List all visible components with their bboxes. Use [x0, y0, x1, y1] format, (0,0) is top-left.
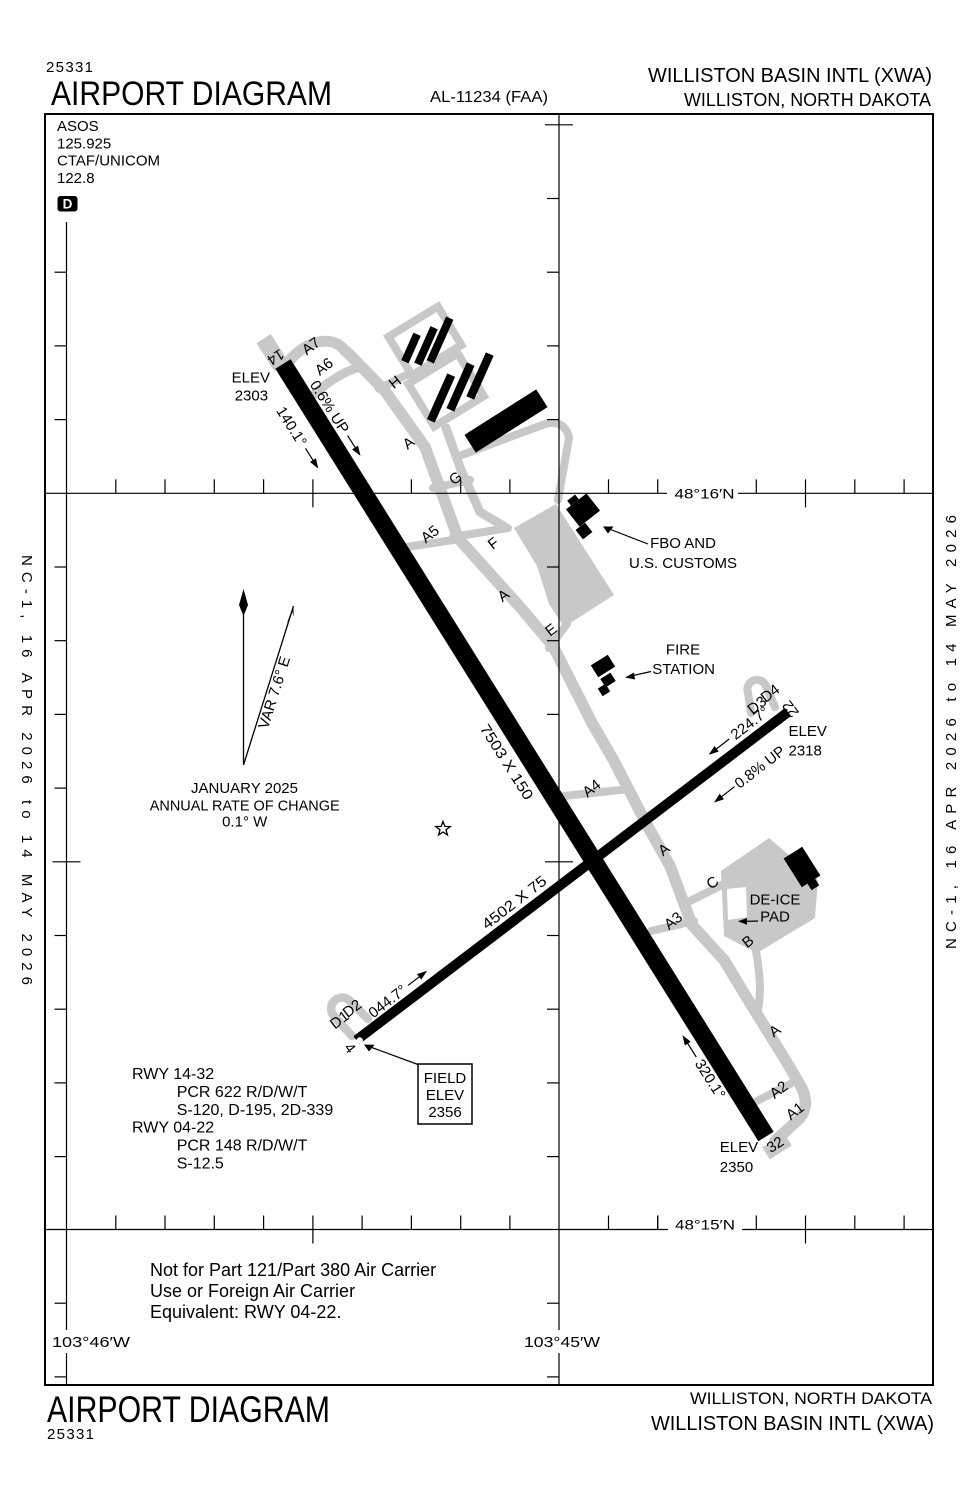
svg-text:PCR 148 R/D/W/T: PCR 148 R/D/W/T — [177, 1138, 308, 1155]
svg-text:ASOS: ASOS — [57, 118, 99, 135]
svg-text:ELEV: ELEV — [789, 723, 827, 740]
svg-text:0.1° W: 0.1° W — [222, 813, 268, 830]
svg-text:RWY 04-22: RWY 04-22 — [132, 1120, 214, 1137]
svg-text:D: D — [63, 196, 73, 211]
svg-text:WILLISTON BASIN INTL (XWA): WILLISTON BASIN INTL (XWA) — [648, 65, 932, 87]
svg-text:AL-11234 (FAA): AL-11234 (FAA) — [430, 89, 548, 106]
svg-text:WILLISTON BASIN INTL (XWA): WILLISTON BASIN INTL (XWA) — [651, 1413, 934, 1435]
svg-text:125.925: 125.925 — [57, 135, 111, 152]
svg-text:S-120, D-195, 2D-339: S-120, D-195, 2D-339 — [177, 1102, 334, 1119]
svg-text:U.S. CUSTOMS: U.S. CUSTOMS — [629, 555, 737, 572]
svg-text:2318: 2318 — [789, 743, 822, 760]
svg-text:WILLISTON, NORTH DAKOTA: WILLISTON, NORTH DAKOTA — [684, 90, 931, 110]
svg-text:Use or Foreign Air Carrier: Use or Foreign Air Carrier — [150, 1281, 355, 1301]
svg-text:2356: 2356 — [428, 1104, 461, 1121]
svg-text:48°16′N: 48°16′N — [675, 485, 735, 501]
svg-text:S-12.5: S-12.5 — [177, 1156, 224, 1173]
svg-text:ELEV: ELEV — [426, 1087, 464, 1104]
svg-text:ANNUAL RATE OF CHANGE: ANNUAL RATE OF CHANGE — [150, 798, 340, 815]
svg-text:CTAF/UNICOM: CTAF/UNICOM — [57, 153, 160, 170]
svg-text:2350: 2350 — [720, 1159, 753, 1176]
svg-text:AIRPORT DIAGRAM: AIRPORT DIAGRAM — [51, 75, 332, 113]
svg-text:FIELD: FIELD — [424, 1070, 467, 1087]
svg-text:ELEV: ELEV — [232, 370, 270, 387]
svg-text:Not for Part 121/Part 380 Air: Not for Part 121/Part 380 Air Carrier — [150, 1260, 436, 1280]
svg-text:PAD: PAD — [760, 909, 790, 926]
svg-text:103°46′W: 103°46′W — [52, 1334, 131, 1351]
svg-text:122.8: 122.8 — [57, 170, 95, 187]
svg-text:48°15′N: 48°15′N — [675, 1217, 735, 1233]
svg-text:Equivalent: RWY 04-22.: Equivalent: RWY 04-22. — [150, 1302, 341, 1322]
svg-text:DE-ICE: DE-ICE — [750, 892, 801, 909]
svg-text:25331: 25331 — [46, 59, 93, 76]
svg-text:STATION: STATION — [652, 661, 715, 678]
svg-text:25331: 25331 — [47, 1426, 94, 1443]
svg-text:103°45′W: 103°45′W — [524, 1334, 601, 1351]
svg-text:JANUARY 2025: JANUARY 2025 — [191, 780, 298, 797]
svg-text:FIRE: FIRE — [666, 642, 700, 659]
svg-text:PCR 622 R/D/W/T: PCR 622 R/D/W/T — [177, 1084, 308, 1101]
svg-text:FBO AND: FBO AND — [650, 535, 716, 552]
svg-text:WILLISTON, NORTH DAKOTA: WILLISTON, NORTH DAKOTA — [690, 1389, 933, 1408]
svg-text:ELEV: ELEV — [720, 1139, 758, 1156]
svg-text:RWY 14-32: RWY 14-32 — [132, 1066, 214, 1083]
svg-text:AIRPORT DIAGRAM: AIRPORT DIAGRAM — [47, 1389, 330, 1430]
svg-text:2303: 2303 — [235, 388, 268, 405]
